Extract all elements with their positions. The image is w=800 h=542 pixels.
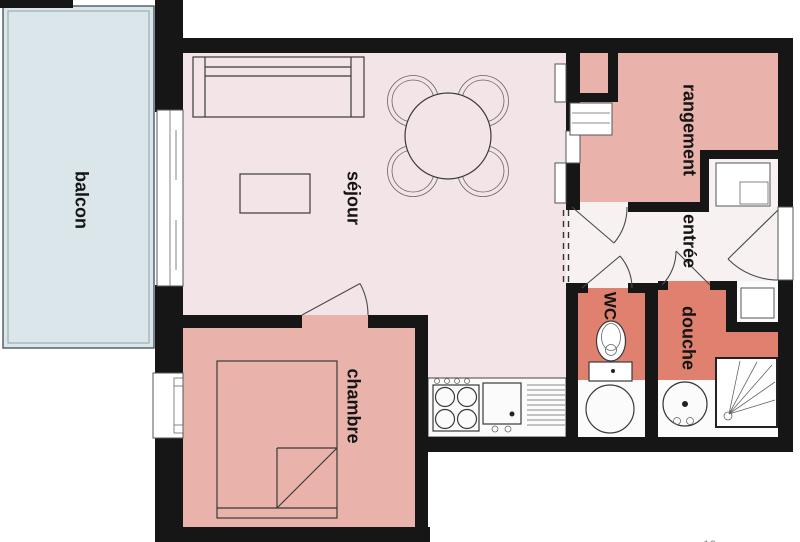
wall-segment [708,150,778,159]
wall-segment [566,288,578,437]
wall-segment [155,438,183,530]
floor-plan-canvas: balcon séjour chambre rangement entrée W… [0,0,800,542]
wc-appliance-area [578,380,645,437]
wall-opening [566,131,580,163]
wall-segment [155,285,183,373]
water-heater-icon [741,288,774,318]
wall-segment [368,315,415,328]
wall-segment [566,163,580,210]
entree-closet-icon [716,163,770,206]
wall-segment [155,0,183,112]
sink-drain [510,412,515,417]
page-number-artifact: 10 [703,538,717,542]
room-label-wc: WC [601,292,620,320]
wall-segment [415,315,428,542]
room-label-chambre: chambre [343,368,363,443]
wall-segment [726,322,778,332]
entry-door-opening [778,207,793,280]
wall-segment [645,288,658,437]
wall-segment [155,527,430,542]
radiator [555,163,566,203]
wall-segment [0,0,73,8]
radiator [555,64,566,102]
dining-table-icon [405,93,491,179]
wall-segment [566,93,618,102]
wall-segment [155,38,793,53]
wall-segment [566,283,588,293]
chambre-window [153,373,183,438]
floor-plan: balcon séjour chambre rangement entrée W… [0,0,800,542]
wall-segment [658,281,668,290]
wall-segment [415,437,793,452]
wall-segment [628,202,708,212]
room-entree [566,208,778,288]
room-label-douche: douche [678,306,698,370]
wall-segment [710,281,726,290]
wall-segment [180,315,302,328]
shower-tray-icon [716,358,777,427]
room-label-balcon: balcon [71,171,91,229]
room-label-rangement: rangement [679,84,699,176]
closet-icon [570,103,612,135]
rangement-door-opening [580,202,628,212]
wall-segment [628,283,658,293]
room-label-sejour: séjour [343,171,363,225]
room-label-entree: entrée [679,214,699,268]
room-chambre [180,315,415,527]
